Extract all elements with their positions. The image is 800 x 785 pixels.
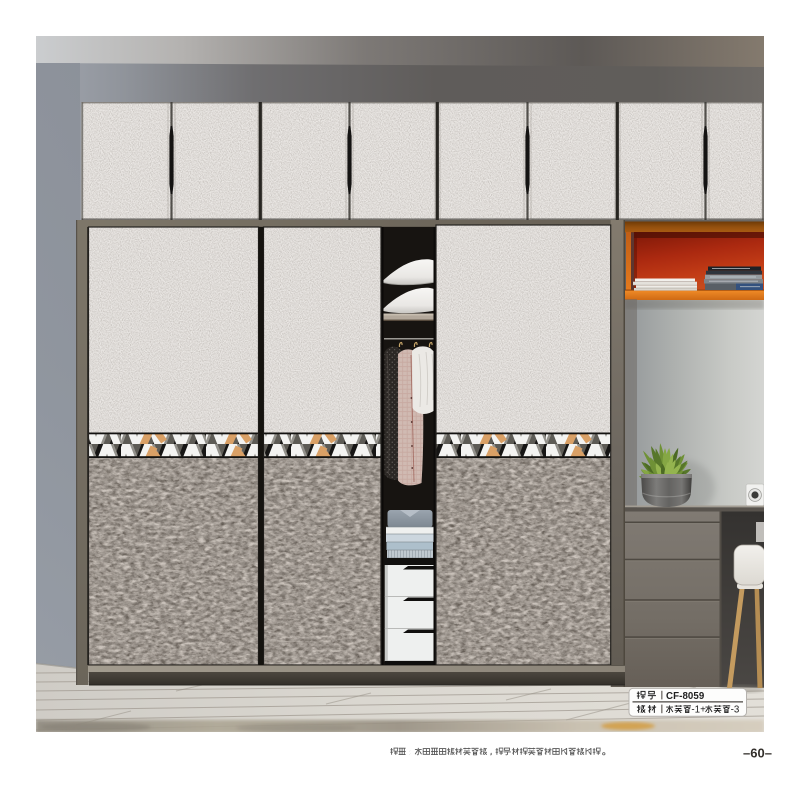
svg-text:-3: -3 (731, 704, 740, 715)
svg-text:CF-8059: CF-8059 (666, 691, 705, 702)
svg-text:-1+: -1+ (691, 704, 706, 715)
svg-text:–60–: –60– (743, 746, 772, 761)
